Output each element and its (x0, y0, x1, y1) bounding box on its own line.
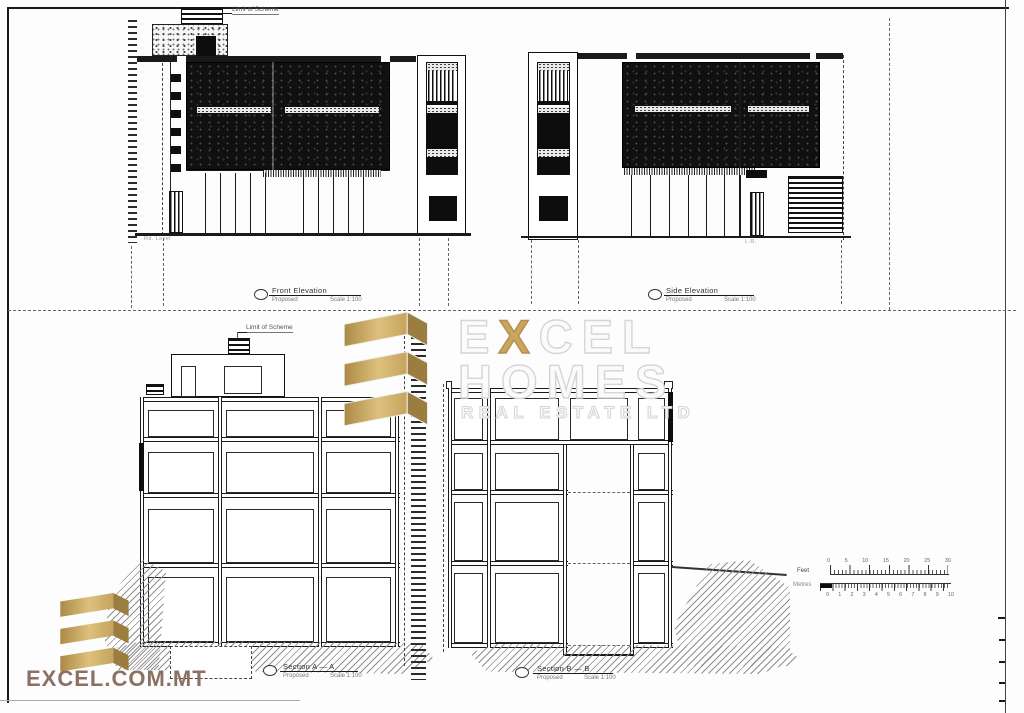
metres-zero-block (820, 584, 832, 588)
ruler-tick (999, 700, 1005, 702)
small-window (171, 92, 181, 100)
ground-line (521, 236, 851, 238)
page-border-left (7, 7, 9, 703)
penthouse-room (224, 366, 262, 394)
footer-logo-text: EXCEL.COM.MT (26, 666, 207, 692)
limit-of-scheme-label: Limit of Scheme (232, 6, 279, 15)
span: 15 (883, 558, 889, 564)
ruler-tick (998, 617, 1005, 619)
front-scale: Scale 1:100 (330, 297, 362, 303)
railing (235, 173, 236, 233)
front-status: Proposed (272, 297, 298, 303)
side-title: Side Elevation (666, 286, 718, 295)
section-wall (448, 388, 452, 648)
room (326, 452, 391, 493)
room (226, 577, 314, 642)
excel-logo-icon (60, 593, 146, 675)
small-window (171, 146, 181, 154)
limit-of-scheme-label: Limit of Scheme (246, 324, 293, 333)
watermark-gold-x: X (498, 310, 538, 363)
tower-window (429, 196, 457, 221)
cut-wall (139, 443, 144, 491)
railing (724, 175, 725, 236)
door-lintel (746, 170, 767, 178)
blackfill (427, 113, 457, 149)
tower-panel (426, 62, 458, 175)
section-wall (395, 397, 399, 647)
section-wall (218, 397, 222, 647)
blackfill (427, 101, 457, 105)
chimney-hatch (228, 338, 250, 354)
section-a-status: Proposed (283, 673, 309, 679)
room (570, 398, 628, 440)
side-title-bubble (648, 289, 662, 300)
railing (688, 175, 689, 236)
polygon (344, 352, 407, 387)
section-wall (318, 397, 322, 647)
small-window (171, 128, 181, 136)
span: 5 (845, 558, 848, 564)
room (638, 573, 665, 643)
floor-slab (140, 437, 400, 442)
front-facade (186, 62, 390, 170)
room (638, 398, 665, 440)
tower-panel (537, 62, 570, 175)
construction-dash (531, 240, 532, 304)
room (495, 573, 559, 643)
span: 25 (924, 558, 930, 564)
boundary-line (443, 384, 444, 652)
g (60, 593, 128, 672)
louvre-door (169, 191, 183, 233)
vstripe (428, 71, 456, 101)
room (495, 398, 559, 440)
boundary-dash (889, 18, 890, 310)
room (454, 573, 483, 643)
small-window (171, 164, 181, 172)
blackfill (538, 101, 569, 105)
boundary-dash (131, 246, 132, 308)
railing (333, 173, 334, 233)
facade-band (196, 106, 272, 114)
floor-slab (140, 563, 400, 568)
construction-dash (578, 240, 579, 304)
polygon (113, 593, 128, 616)
roof-steps (146, 384, 164, 395)
room (326, 410, 391, 437)
span: 2 (850, 592, 853, 598)
room (638, 453, 665, 490)
span: 8 (924, 592, 927, 598)
facade-divider (739, 62, 741, 236)
section-a-scale: Scale 1:100 (330, 673, 362, 679)
lr-label: L.R. (745, 239, 757, 245)
penthouse-opening (196, 36, 216, 56)
vstripe (539, 71, 568, 101)
metres-label: Metres (793, 582, 811, 588)
span: 7 (911, 592, 914, 598)
party-wall-hatch (411, 331, 426, 680)
feet-label: Feet (797, 568, 809, 574)
section-a-title-bubble (263, 665, 277, 676)
railing (205, 173, 206, 233)
title-rule (269, 295, 361, 296)
span: 4 (875, 592, 878, 598)
section-b-title: Section B — B (537, 664, 590, 673)
railing (303, 173, 304, 233)
railing (265, 173, 266, 233)
room (454, 502, 483, 561)
limit-line (162, 58, 163, 235)
boundary-line (843, 55, 844, 240)
metres-numbers: 012345678910 (826, 592, 954, 598)
sheet-divider (8, 310, 1016, 311)
ruler-tick (999, 682, 1005, 684)
section-b-title-bubble (515, 667, 529, 678)
floor-slab (140, 397, 400, 402)
room (226, 410, 314, 437)
ruler-tick (999, 661, 1005, 663)
ground-line (135, 233, 471, 236)
span: 0 (827, 558, 830, 564)
span: E (458, 310, 498, 363)
room (638, 502, 665, 561)
room (454, 453, 483, 490)
title-rule (664, 295, 754, 296)
page-border-bottom (0, 700, 300, 701)
scale-bar: Feet 051015202530 Metres 012345678910 (793, 558, 968, 600)
facade-band (634, 105, 732, 113)
railing (220, 173, 221, 233)
construction-dash (163, 238, 164, 306)
facade-band (747, 105, 810, 113)
svg (60, 593, 146, 675)
front-title: Front Elevation (272, 286, 327, 295)
span: 10 (862, 558, 868, 564)
title-rule (280, 671, 358, 672)
watermark-line1: EXCEL (458, 313, 660, 360)
span: 3 (863, 592, 866, 598)
span: 0 (826, 592, 829, 598)
span: 5 (887, 592, 890, 598)
section-b-scale: Scale 1:100 (584, 675, 616, 681)
title-rule (533, 673, 613, 674)
parapet (636, 53, 810, 59)
parapet (390, 56, 416, 62)
penthouse-masonry (152, 24, 228, 56)
floor-slab (448, 440, 673, 445)
polygon (344, 312, 407, 347)
room (326, 577, 391, 642)
facade-joint (272, 62, 274, 170)
room (495, 502, 559, 561)
speckle (538, 63, 569, 71)
blackfill (427, 157, 457, 174)
span: 1 (838, 592, 841, 598)
shaft-dashed-slab (568, 563, 630, 564)
construction-dash (841, 240, 842, 304)
railing (669, 175, 670, 236)
side-scale: Scale 1:100 (724, 297, 756, 303)
drawing-sheet: Limit of Scheme Rd. Level Front Ele (0, 0, 1024, 713)
blackfill (538, 113, 569, 149)
leader-line (237, 332, 247, 333)
feet-ruler (830, 565, 949, 575)
tower-window (539, 196, 568, 221)
facade-band (284, 106, 380, 114)
road-level-label: Rd. Level (144, 236, 171, 242)
blackfill (538, 157, 569, 174)
section-a-title: Section A — A (283, 662, 334, 671)
ruler-tick (999, 639, 1005, 641)
railing (706, 175, 707, 236)
shaft-wall (630, 445, 634, 656)
railing (250, 173, 251, 233)
boundary-line (404, 336, 405, 666)
railing (650, 175, 651, 236)
span: 6 (899, 592, 902, 598)
room (226, 509, 314, 563)
side-status: Proposed (666, 297, 692, 303)
floor-slab (448, 561, 673, 566)
railing (318, 173, 319, 233)
small-window (171, 110, 181, 118)
floor-slab (140, 493, 400, 498)
balcony-fringe (624, 168, 756, 175)
span: CEL (539, 310, 660, 363)
room (495, 453, 559, 490)
railing (363, 173, 364, 233)
section-wall (487, 388, 491, 648)
polygon (113, 620, 128, 643)
construction-dash (419, 238, 420, 306)
feet-numbers: 051015202530 (827, 558, 951, 564)
page-border-top (7, 7, 1009, 9)
section-b-status: Proposed (537, 675, 563, 681)
parapet (816, 53, 843, 59)
shaft-dashed-slab (568, 492, 630, 493)
construction-dash (448, 238, 449, 306)
room (454, 398, 483, 440)
room (148, 452, 214, 493)
metres-ruler (820, 583, 951, 591)
louvre-door (750, 192, 764, 236)
speckle (538, 149, 569, 157)
party-wall-hatch (128, 20, 137, 243)
room (148, 410, 214, 437)
floor-slab (448, 490, 673, 495)
span: 30 (945, 558, 951, 564)
room (326, 509, 391, 563)
floor-slab (448, 388, 673, 393)
railing (348, 173, 349, 233)
room (148, 509, 214, 563)
page-border-right (1005, 0, 1006, 713)
speckle (427, 149, 457, 157)
shaft-wall (563, 445, 567, 656)
garage-door (788, 176, 843, 233)
railing (631, 175, 632, 236)
polygon (60, 620, 113, 644)
parapet (578, 53, 627, 59)
span: 10 (948, 592, 954, 598)
span: 20 (904, 558, 910, 564)
span: 9 (936, 592, 939, 598)
polygon (60, 593, 113, 617)
penthouse-door (181, 366, 196, 397)
room (226, 452, 314, 493)
front-title-bubble (254, 289, 268, 300)
side-facade (622, 62, 820, 168)
cut-wall (668, 392, 673, 442)
speckle (427, 63, 457, 71)
parapet (137, 56, 177, 62)
small-window (171, 74, 181, 82)
